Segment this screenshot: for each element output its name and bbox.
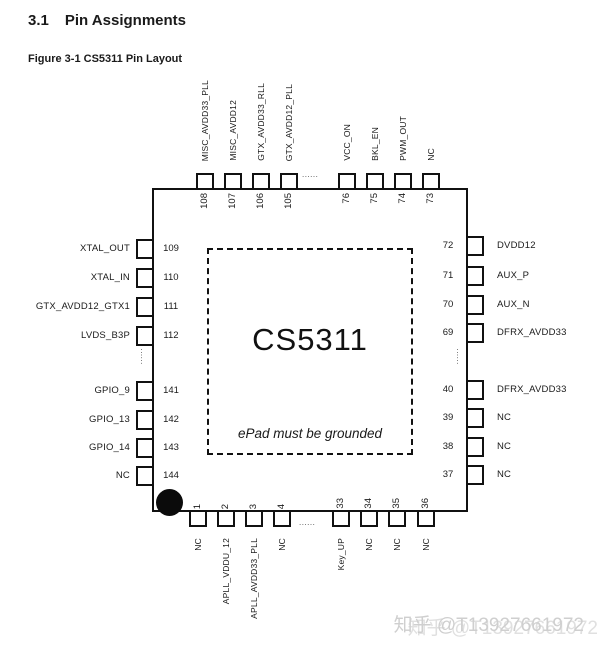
- watermark-text-ghost: 知乎 @T13927661972: [408, 613, 598, 640]
- pin-number: 39: [435, 412, 461, 424]
- pin-label: Key_UP: [335, 538, 347, 570]
- pin-number: 111: [157, 301, 185, 313]
- pin-pad: [136, 410, 154, 430]
- section-title: 3.1 Pin Assignments: [28, 12, 186, 29]
- pin-number: 142: [157, 414, 185, 426]
- right-pins-ellipsis: ......: [451, 348, 461, 364]
- pin-label: PWM_OUT: [397, 116, 409, 161]
- pin-number: 107: [227, 193, 239, 209]
- pin-label: DFRX_AVDD33: [497, 326, 597, 340]
- pin-pad: [466, 323, 484, 343]
- pin-label: NC: [391, 538, 403, 551]
- pin-number: 73: [425, 193, 437, 204]
- pin-pad: [252, 173, 270, 190]
- pin-label: AUX_N: [497, 298, 597, 312]
- epad-note: ePad must be grounded: [209, 426, 411, 441]
- pin-label: NC: [497, 440, 597, 454]
- pin-pad: [332, 510, 350, 527]
- pin-number: 33: [335, 498, 347, 509]
- pin-pad: [422, 173, 440, 190]
- pin-pad: [196, 173, 214, 190]
- pin-pad: [338, 173, 356, 190]
- pin-pad: [466, 236, 484, 256]
- pin-label: GTX_AVDD12_GTX1: [0, 300, 130, 314]
- pin-label: LVDS_B3P: [0, 329, 130, 343]
- pin-label: AUX_P: [497, 269, 597, 283]
- top-pins-ellipsis: ......: [302, 170, 318, 179]
- pin-label: NC: [0, 469, 130, 483]
- pin-number: 75: [369, 193, 381, 204]
- pin-pad: [466, 295, 484, 315]
- pin-label: VCC_ON: [341, 124, 353, 161]
- pin-number: 70: [435, 299, 461, 311]
- pin-pad: [245, 510, 263, 527]
- pin-pad: [189, 510, 207, 527]
- pin-number: 69: [435, 327, 461, 339]
- chip-name: CS5311: [209, 322, 411, 358]
- pin-label: APLL_AVDD33_PLL: [248, 538, 260, 619]
- pin-pad: [466, 266, 484, 286]
- pin-number: 37: [435, 469, 461, 481]
- pin-number: 72: [435, 240, 461, 252]
- pin-number: 141: [157, 385, 185, 397]
- pin-number: 38: [435, 441, 461, 453]
- pin-number: 109: [157, 243, 185, 255]
- pin-number: 108: [199, 193, 211, 209]
- pin-label: MISC_AVDD33_PLL: [199, 80, 211, 161]
- pin-number: 4: [276, 504, 288, 509]
- pin-label: NC: [192, 538, 204, 551]
- pin-label: NC: [425, 148, 437, 161]
- pin-label: DFRX_AVDD33: [497, 383, 597, 397]
- figure-caption: Figure 3-1 CS5311 Pin Layout: [28, 53, 182, 65]
- pin1-indicator-dot: [156, 489, 183, 516]
- pin-pad: [360, 510, 378, 527]
- pin-pad: [466, 465, 484, 485]
- pin-pad: [224, 173, 242, 190]
- pin-pad: [466, 408, 484, 428]
- pin-number: 112: [157, 330, 185, 342]
- pin-number: 40: [435, 384, 461, 396]
- pin-number: 34: [363, 498, 375, 509]
- pin-pad: [136, 326, 154, 346]
- pin-pad: [136, 297, 154, 317]
- pin-number: 35: [391, 498, 403, 509]
- pin-pad: [466, 437, 484, 457]
- pin-number: 143: [157, 442, 185, 454]
- pin-pad: [394, 173, 412, 190]
- pin-number: 144: [157, 470, 185, 482]
- pin-pad: [136, 381, 154, 401]
- pin-label: GPIO_9: [0, 384, 130, 398]
- pin-pad: [136, 239, 154, 259]
- pin-label: GPIO_13: [0, 413, 130, 427]
- pin-pad: [136, 268, 154, 288]
- pin-label: DVDD12: [497, 239, 597, 253]
- pin-label: NC: [420, 538, 432, 551]
- pin-label: NC: [363, 538, 375, 551]
- pin-label: NC: [497, 468, 597, 482]
- pin-pad: [136, 438, 154, 458]
- pin-label: APLL_VDDU_12: [220, 538, 232, 604]
- pin-pad: [136, 466, 154, 486]
- pin-pad: [280, 173, 298, 190]
- pin-pad: [273, 510, 291, 527]
- pin-number: 36: [420, 498, 432, 509]
- pin-number: 105: [283, 193, 295, 209]
- pin-number: 3: [248, 504, 260, 509]
- pin-pad: [388, 510, 406, 527]
- pin-number: 110: [157, 272, 185, 284]
- pin-label: XTAL_OUT: [0, 242, 130, 256]
- pin-number: 1: [192, 504, 204, 509]
- pin-label: GPIO_14: [0, 441, 130, 455]
- section-number: 3.1: [28, 12, 49, 29]
- pin-pad: [366, 173, 384, 190]
- pin-number: 106: [255, 193, 267, 209]
- watermark-text: 知乎 @T13927661972: [394, 610, 584, 637]
- pin-number: 74: [397, 193, 409, 204]
- section-title-text: Pin Assignments: [65, 12, 186, 29]
- pin-label: NC: [276, 538, 288, 551]
- left-pins-ellipsis: ......: [135, 348, 145, 364]
- bottom-pins-ellipsis: ......: [299, 518, 315, 527]
- pin-label: GTX_AVDD33_RLL: [255, 83, 267, 161]
- pin-label: BKL_EN: [369, 127, 381, 161]
- pin-number: 71: [435, 270, 461, 282]
- epad-outline: CS5311 ePad must be grounded: [207, 248, 413, 455]
- pin-label: NC: [497, 411, 597, 425]
- pin-label: GTX_AVDD12_PLL: [283, 84, 295, 161]
- pin-label: MISC_AVDD12: [227, 100, 239, 161]
- pin-number: 2: [220, 504, 232, 509]
- datasheet-page: 3.1 Pin Assignments Figure 3-1 CS5311 Pi…: [0, 0, 600, 647]
- pin-pad: [217, 510, 235, 527]
- pin-label: XTAL_IN: [0, 271, 130, 285]
- pin-pad: [466, 380, 484, 400]
- pin-pad: [417, 510, 435, 527]
- pin-number: 76: [341, 193, 353, 204]
